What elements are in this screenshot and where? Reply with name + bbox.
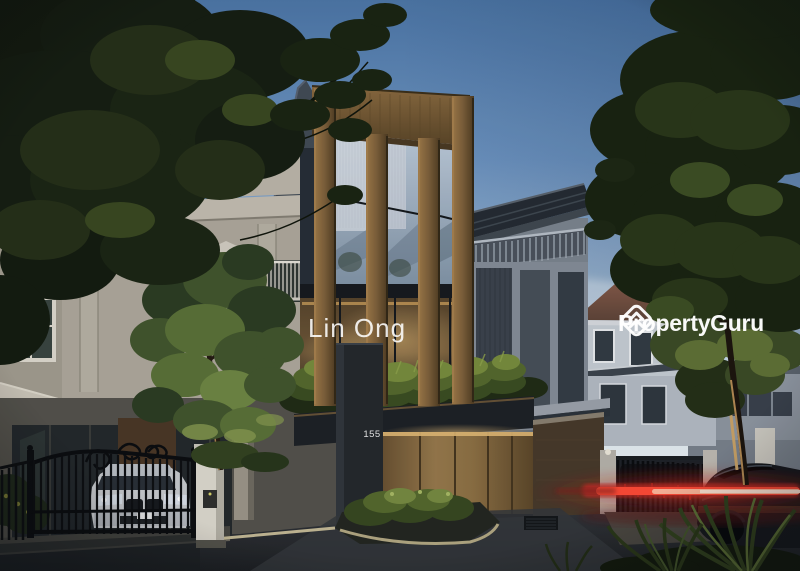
house-number-label: 155 (358, 429, 386, 440)
rendered-scene (0, 0, 800, 571)
propertyguru-logo-icon (618, 302, 655, 339)
watermark-agent-name: Lin Ong (308, 313, 406, 344)
property-listing-photo: Lin Ong PropertyGuru 155 (0, 0, 800, 571)
dusk-tint-overlay (0, 0, 800, 571)
watermark-brand: PropertyGuru (618, 302, 764, 344)
